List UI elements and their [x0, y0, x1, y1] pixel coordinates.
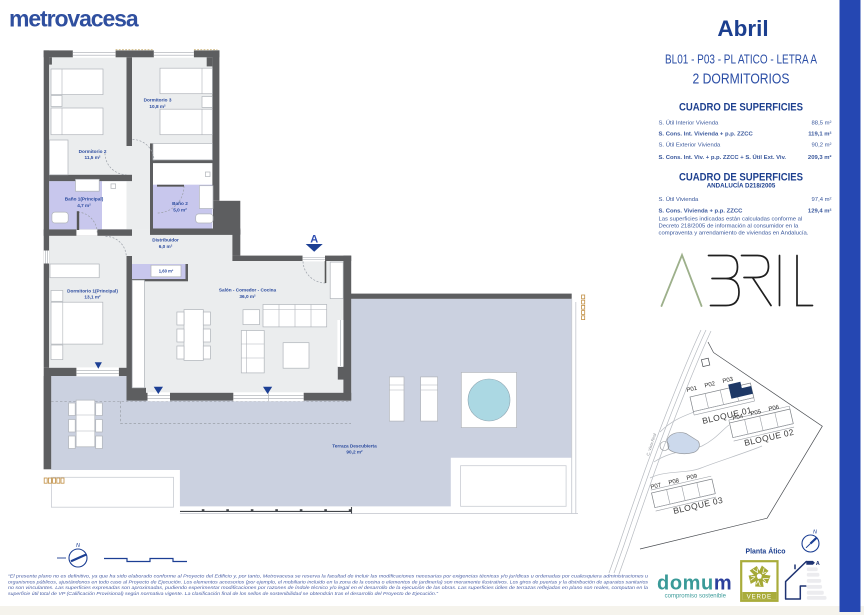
svg-text:BL01 - P03 - PL ATICO - LETRA: BL01 - P03 - PL ATICO - LETRA A — [665, 53, 818, 67]
svg-text:S. Útil Vivienda: S. Útil Vivienda — [659, 196, 700, 203]
svg-text:A: A — [310, 234, 318, 246]
svg-text:90,2 m²: 90,2 m² — [812, 143, 832, 149]
svg-text:Dormitorio 2: Dormitorio 2 — [79, 149, 107, 154]
svg-text:88,5 m²: 88,5 m² — [812, 120, 832, 126]
svg-text:P01: P01 — [686, 386, 698, 394]
svg-text:P02: P02 — [704, 381, 716, 389]
svg-text:Baño 2: Baño 2 — [172, 201, 188, 206]
svg-text:A: A — [816, 561, 820, 567]
svg-text:13,1 m²: 13,1 m² — [84, 295, 101, 300]
svg-text:4,7 m²: 4,7 m² — [77, 203, 91, 208]
svg-text:Salón - Comedor - Cocina: Salón - Comedor - Cocina — [219, 288, 277, 293]
svg-text:ANDALUCÍA D218/2005: ANDALUCÍA D218/2005 — [707, 182, 776, 190]
svg-text:Planta Ático: Planta Ático — [746, 547, 786, 556]
svg-text:VERDE: VERDE — [747, 593, 772, 600]
svg-text:10,8 m²: 10,8 m² — [149, 104, 166, 109]
svg-text:compromiso sostenible: compromiso sostenible — [665, 593, 727, 599]
svg-text:P09: P09 — [686, 474, 698, 482]
svg-text:Las superficies indicadas está: Las superficies indicadas están calculad… — [659, 217, 803, 223]
svg-text:209,3 m²: 209,3 m² — [808, 154, 832, 161]
svg-text:Distribuidor: Distribuidor — [152, 238, 179, 243]
svg-text:S. Cons. Int. Vivienda + p.p.: S. Cons. Int. Vivienda + p.p. ZZCC — [659, 132, 754, 138]
svg-text:P07: P07 — [650, 483, 662, 491]
svg-text:S. Cons. Vivienda + p.p. ZZCC: S. Cons. Vivienda + p.p. ZZCC — [659, 209, 744, 215]
svg-text:“El presente plano no es defin: “El presente plano no es definitivo, ya … — [8, 574, 649, 579]
svg-text:S. Cons. Int. Viv. + p.p. ZZCC: S. Cons. Int. Viv. + p.p. ZZCC + S. Útil… — [659, 154, 787, 161]
svg-text:CUADRO DE SUPERFICIES: CUADRO DE SUPERFICIES — [679, 102, 803, 114]
svg-text:superficie útil total de VP (C: superficie útil total de VP (Calificació… — [8, 591, 439, 596]
svg-text:119,1 m²: 119,1 m² — [808, 131, 831, 138]
svg-text:N: N — [76, 543, 80, 549]
svg-text:organismos públicos, ajustándo: organismos públicos, ajustándonos en tod… — [8, 579, 649, 584]
svg-text:domum: domum — [657, 573, 732, 595]
svg-text:metrovacesa: metrovacesa — [9, 6, 139, 32]
svg-text:6,0 m²: 6,0 m² — [159, 244, 173, 249]
svg-text:97,4 m²: 97,4 m² — [812, 197, 832, 203]
svg-text:S. Útil Exterior Vivienda: S. Útil Exterior Vivienda — [659, 142, 721, 149]
svg-text:S. Útil Interior Vivienda: S. Útil Interior Vivienda — [659, 119, 720, 126]
svg-text:90,2 m²: 90,2 m² — [346, 450, 363, 455]
svg-text:Terraza Descubierta: Terraza Descubierta — [332, 443, 377, 448]
svg-text:Dormitorio 1(Principal): Dormitorio 1(Principal) — [67, 288, 118, 293]
svg-text:5,0 m²: 5,0 m² — [173, 207, 187, 212]
svg-text:1,60 m²: 1,60 m² — [159, 268, 174, 273]
svg-text:Decreto 218/2005 de informació: Decreto 218/2005 de información al consu… — [659, 224, 800, 230]
svg-text:no son vinculantes. Las superf: no son vinculantes. Las superficies expr… — [8, 585, 649, 590]
svg-text:Dormitorio 3: Dormitorio 3 — [144, 98, 172, 103]
svg-text:Abril: Abril — [717, 16, 768, 41]
svg-text:129,4 m²: 129,4 m² — [808, 208, 832, 215]
svg-text:36,0 m²: 36,0 m² — [239, 294, 256, 299]
svg-text:P08: P08 — [668, 478, 680, 486]
svg-text:compraventa y arrendamiento de: compraventa y arrendamiento de viviendas… — [659, 231, 809, 237]
svg-text:N: N — [813, 530, 817, 536]
svg-text:11,5 m²: 11,5 m² — [85, 155, 101, 160]
svg-text:2 DORMITORIOS: 2 DORMITORIOS — [693, 71, 790, 88]
svg-text:Baño 1(Principal): Baño 1(Principal) — [65, 197, 104, 202]
